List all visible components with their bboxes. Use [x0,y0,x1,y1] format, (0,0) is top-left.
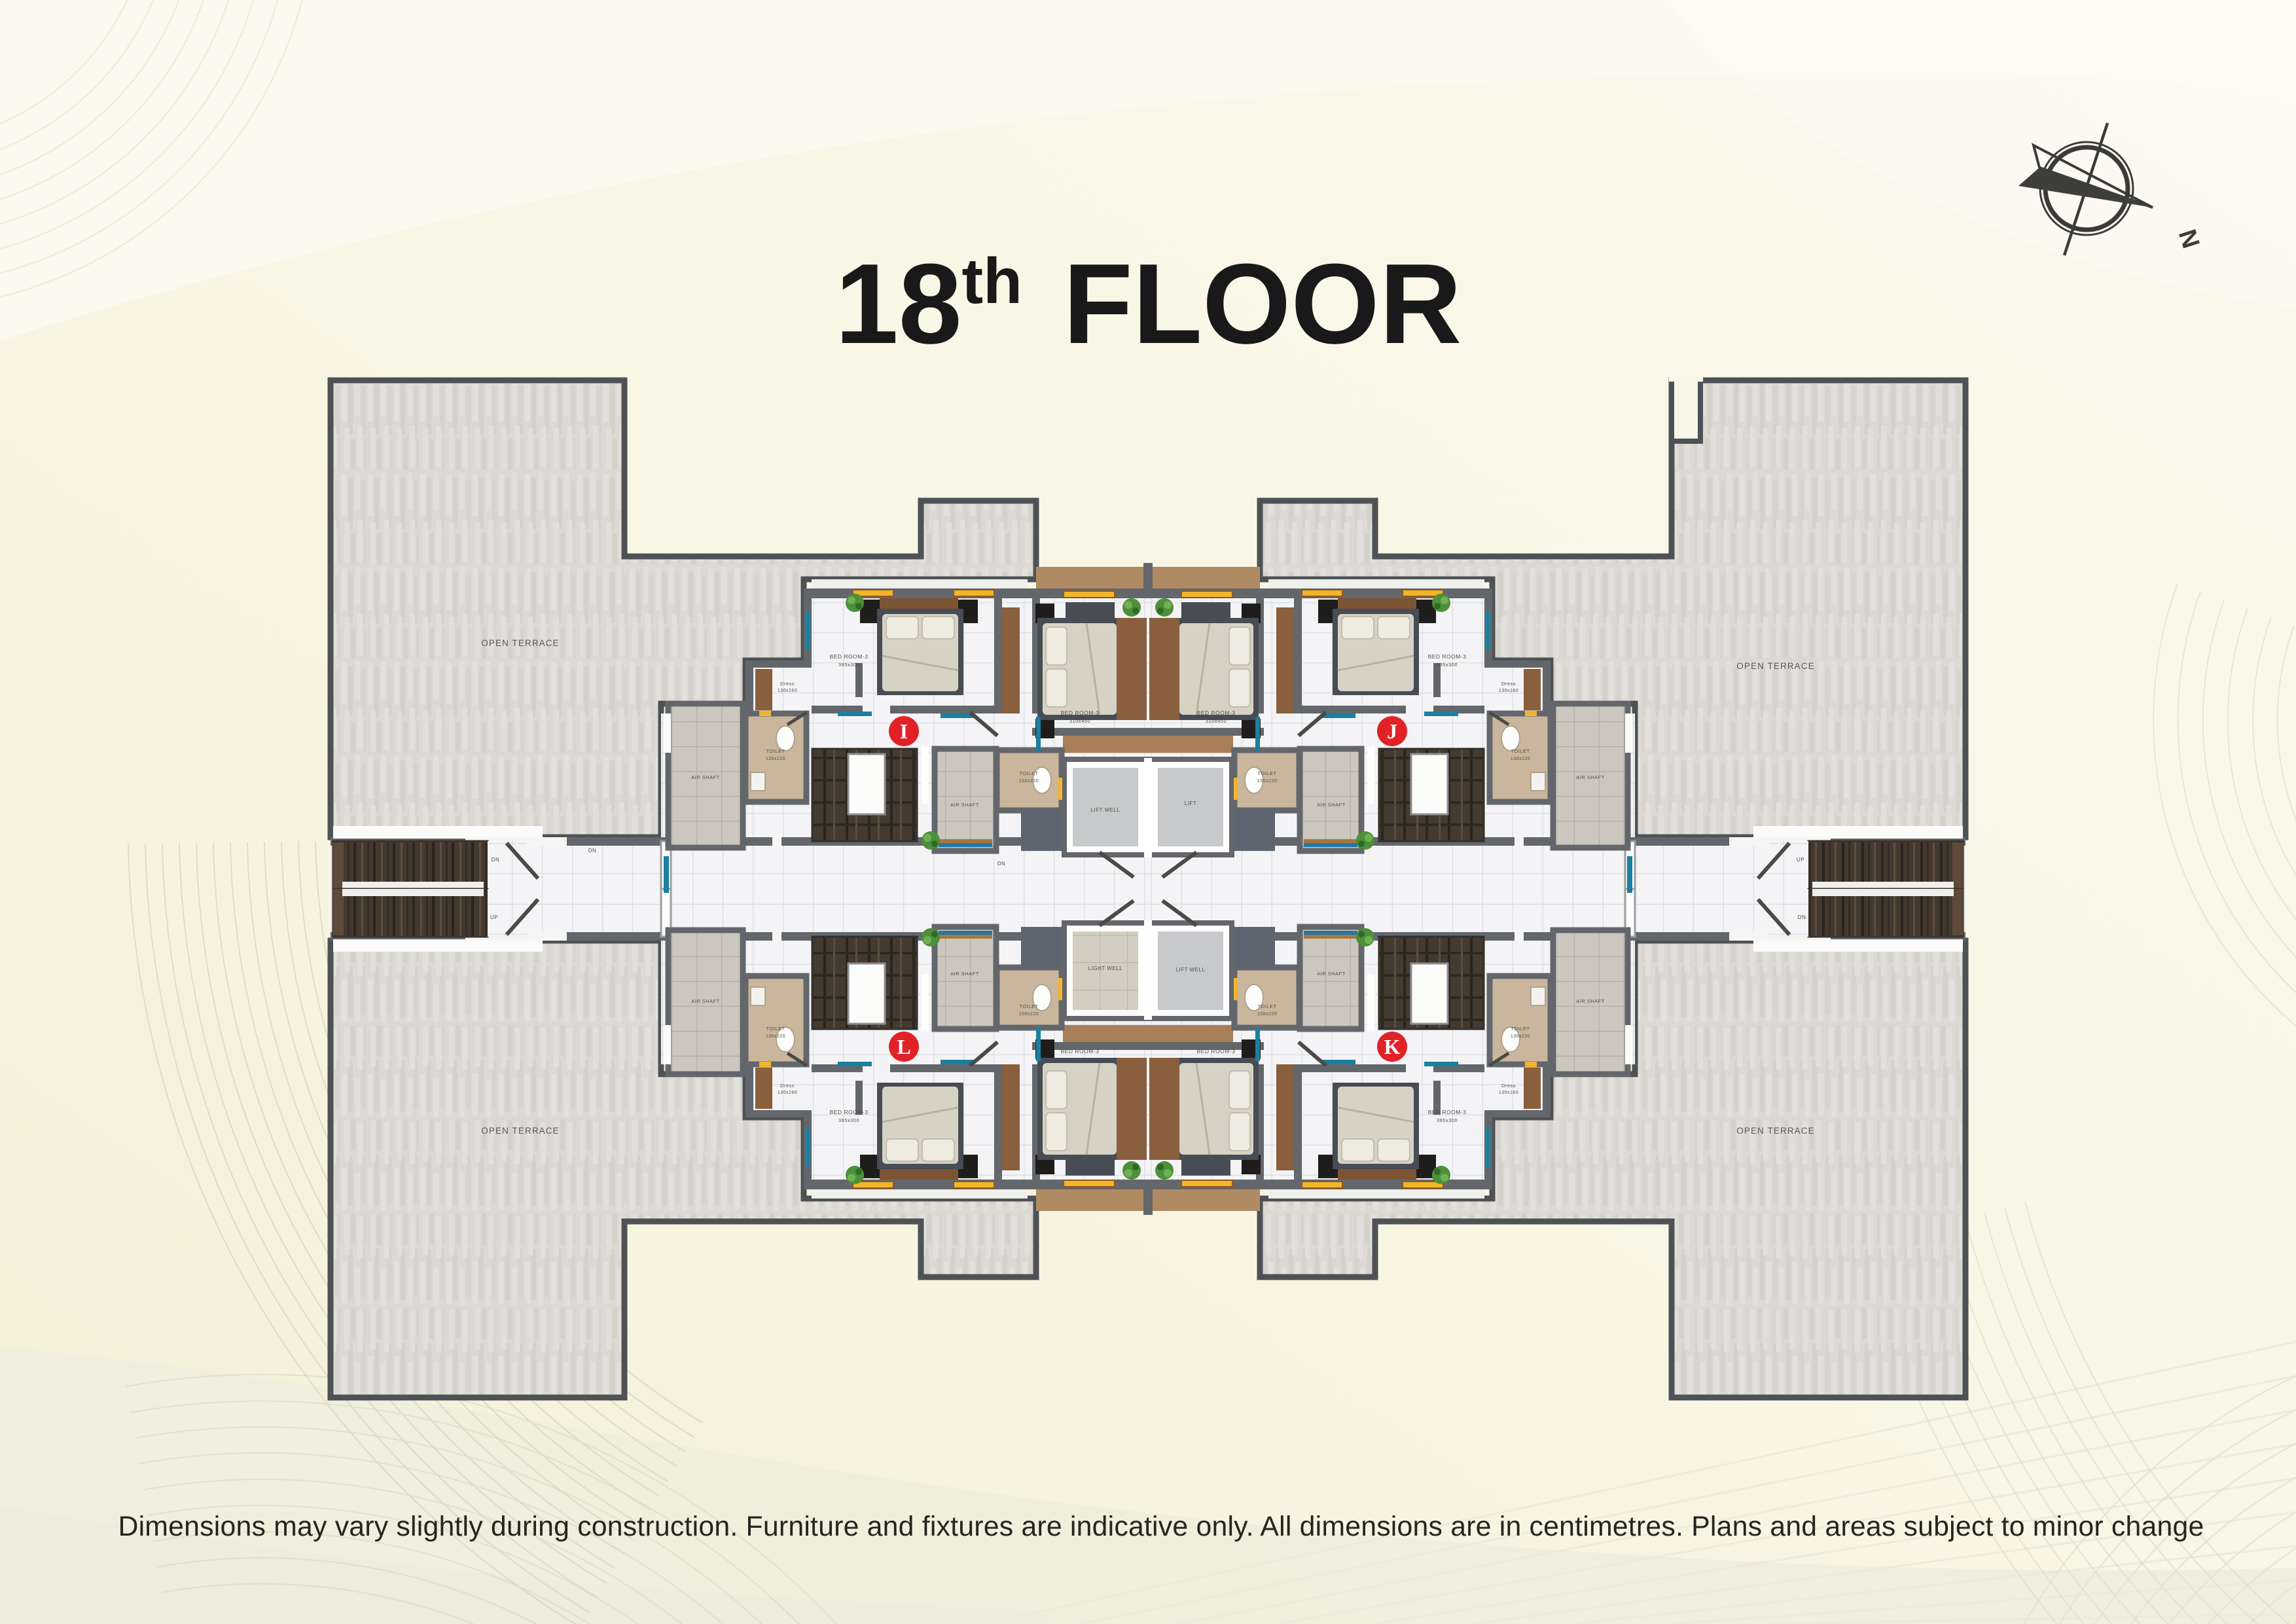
svg-text:AIR SHAFT: AIR SHAFT [1317,802,1346,808]
svg-text:LIGHT WELL: LIGHT WELL [1088,965,1122,971]
svg-text:150x220: 150x220 [1019,779,1039,784]
svg-text:Dress: Dress [1501,681,1516,687]
svg-text:130x160: 130x160 [1499,1091,1518,1095]
svg-text:310x450: 310x450 [1206,718,1227,724]
svg-text:TOILET: TOILET [1257,1003,1276,1009]
svg-text:L: L [897,1035,910,1058]
svg-text:TOILET: TOILET [1511,748,1530,754]
svg-text:18th FLOOR: 18th FLOOR [835,240,1462,367]
svg-text:TOILET: TOILET [1019,770,1038,776]
svg-text:Dress: Dress [1501,1083,1516,1089]
svg-text:BED ROOM-3: BED ROOM-3 [1061,1048,1100,1055]
svg-text:I: I [900,719,908,743]
svg-text:Dress: Dress [780,681,795,687]
svg-text:Dimensions may vary slightly d: Dimensions may vary slightly during cons… [118,1511,2204,1542]
svg-text:AIR SHAFT: AIR SHAFT [691,998,720,1004]
svg-text:LIFT: LIFT [1185,801,1196,806]
svg-text:395x300: 395x300 [1437,662,1458,668]
svg-text:LIFT WELL: LIFT WELL [1091,807,1121,813]
svg-text:130x160: 130x160 [778,689,797,693]
svg-text:BED ROOM-3: BED ROOM-3 [1428,653,1467,660]
svg-text:130x160: 130x160 [778,1091,797,1095]
svg-text:UP: UP [490,914,498,920]
svg-text:DN: DN [997,861,1006,867]
svg-text:AIR SHAFT: AIR SHAFT [1576,774,1605,780]
svg-text:K: K [1384,1035,1401,1058]
svg-text:OPEN TERRACE: OPEN TERRACE [481,638,559,648]
svg-text:BED ROOM-3: BED ROOM-3 [1061,710,1100,716]
svg-text:AIR SHAFT: AIR SHAFT [1317,971,1346,977]
svg-text:OPEN TERRACE: OPEN TERRACE [1736,1126,1814,1136]
svg-text:TOILET: TOILET [766,748,785,754]
svg-text:310x450: 310x450 [1206,1056,1227,1062]
svg-text:OPEN TERRACE: OPEN TERRACE [1736,661,1814,671]
svg-text:AIR SHAFT: AIR SHAFT [691,774,720,780]
svg-text:UP: UP [1797,857,1804,863]
svg-text:TOILET: TOILET [1257,770,1276,776]
svg-text:BED ROOM-3: BED ROOM-3 [1197,1048,1236,1055]
svg-text:TOILET: TOILET [1511,1026,1530,1032]
svg-text:OPEN TERRACE: OPEN TERRACE [481,1126,559,1136]
svg-text:310x450: 310x450 [1069,718,1090,724]
svg-text:130x220: 130x220 [1511,757,1530,761]
svg-text:310x450: 310x450 [1069,1056,1090,1062]
svg-text:130x220: 130x220 [1511,1034,1530,1039]
svg-text:395x300: 395x300 [1437,1117,1458,1123]
svg-text:150x220: 150x220 [1019,1012,1039,1017]
svg-text:DN: DN [492,857,500,863]
svg-text:AIR SHAFT: AIR SHAFT [950,971,979,977]
svg-text:150x220: 150x220 [1257,779,1277,784]
svg-text:130x220: 130x220 [766,1034,785,1039]
svg-text:BED ROOM-3: BED ROOM-3 [830,653,869,660]
svg-text:J: J [1387,719,1397,743]
svg-text:130x160: 130x160 [1499,689,1518,693]
svg-text:LIFT WELL: LIFT WELL [1176,967,1206,973]
svg-text:395x300: 395x300 [838,662,859,668]
svg-text:DN: DN [588,848,597,854]
svg-text:AIR SHAFT: AIR SHAFT [1576,998,1605,1004]
svg-text:BED ROOM-3: BED ROOM-3 [1197,710,1236,716]
svg-text:Dress: Dress [780,1083,795,1089]
svg-text:395x300: 395x300 [838,1117,859,1123]
svg-text:BED ROOM-3: BED ROOM-3 [1428,1109,1467,1115]
svg-text:TOILET: TOILET [766,1026,785,1032]
svg-text:BED ROOM-3: BED ROOM-3 [830,1109,869,1115]
svg-text:AIR SHAFT: AIR SHAFT [950,802,979,808]
svg-text:150x220: 150x220 [1257,1012,1277,1017]
svg-text:130x220: 130x220 [766,757,785,761]
svg-text:TOILET: TOILET [1019,1003,1038,1009]
svg-text:DN: DN [1798,914,1806,920]
